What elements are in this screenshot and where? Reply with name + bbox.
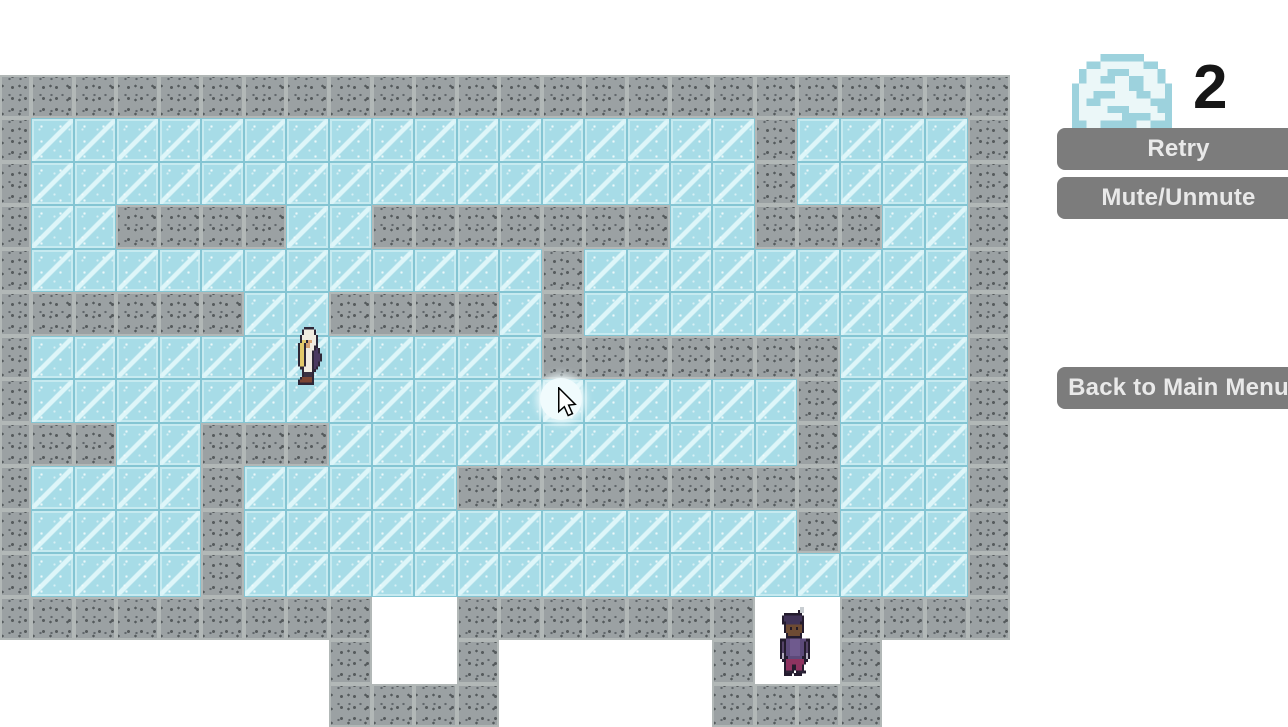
retry-button[interactable]: Retry: [1057, 128, 1288, 170]
ice-tile: [925, 553, 968, 596]
wall-tile: [840, 640, 883, 683]
wall-tile: [755, 684, 798, 727]
wall-tile: [372, 684, 415, 727]
ice-tile: [244, 466, 287, 509]
ice-tile: [797, 162, 840, 205]
ice-tile: [31, 379, 74, 422]
ice-tile: [670, 249, 713, 292]
ice-tile: [329, 205, 372, 248]
wall-tile: [0, 336, 31, 379]
wall-tile: [31, 423, 74, 466]
ice-tile: [372, 249, 415, 292]
ice-tile: [627, 553, 670, 596]
ice-tile: [627, 292, 670, 335]
wall-tile: [116, 75, 159, 118]
wall-tile: [0, 553, 31, 596]
wall-tile: [627, 75, 670, 118]
ice-tile: [882, 118, 925, 161]
ice-tile: [414, 336, 457, 379]
ice-tile: [584, 553, 627, 596]
ice-tile: [840, 249, 883, 292]
ice-tile: [457, 423, 500, 466]
ice-tile: [840, 162, 883, 205]
wall-tile: [0, 510, 31, 553]
ice-tile: [286, 379, 329, 422]
ice-tile: [31, 466, 74, 509]
ice-tile: [840, 292, 883, 335]
wall-tile: [925, 597, 968, 640]
ice-tile: [372, 466, 415, 509]
ice-tile: [329, 118, 372, 161]
wall-tile: [542, 75, 585, 118]
wall-tile: [329, 640, 372, 683]
ice-tile: [414, 162, 457, 205]
ice-tile: [542, 553, 585, 596]
ice-tile: [31, 510, 74, 553]
wall-tile: [627, 597, 670, 640]
ice-tile: [627, 510, 670, 553]
ice-tile: [882, 510, 925, 553]
ice-tile: [840, 466, 883, 509]
wall-tile: [968, 205, 1011, 248]
ice-tile: [882, 423, 925, 466]
wall-tile: [74, 292, 117, 335]
ice-tile: [116, 553, 159, 596]
ice-tile: [159, 336, 202, 379]
npc-character: [778, 607, 812, 676]
wall-tile: [457, 597, 500, 640]
ice-tile: [584, 510, 627, 553]
mute-unmute-button[interactable]: Mute/Unmute: [1057, 177, 1288, 219]
wall-tile: [797, 336, 840, 379]
ice-tile: [31, 553, 74, 596]
wall-tile: [0, 379, 31, 422]
wall-tile: [74, 423, 117, 466]
wall-tile: [797, 684, 840, 727]
ice-tile: [670, 510, 713, 553]
ice-tile: [244, 510, 287, 553]
player-character[interactable]: [294, 327, 324, 385]
ice-tile: [627, 423, 670, 466]
ice-tile: [755, 249, 798, 292]
ice-tile: [712, 162, 755, 205]
wall-tile: [74, 597, 117, 640]
wall-tile: [0, 249, 31, 292]
ice-tile: [670, 118, 713, 161]
ice-tile: [457, 249, 500, 292]
ice-tile: [584, 423, 627, 466]
ice-tile: [797, 553, 840, 596]
ice-tile: [627, 249, 670, 292]
ice-tile: [712, 118, 755, 161]
ice-tile: [159, 466, 202, 509]
wall-tile: [627, 205, 670, 248]
wall-tile: [670, 336, 713, 379]
ice-tile: [670, 205, 713, 248]
ice-tile: [755, 379, 798, 422]
ice-tile: [755, 292, 798, 335]
wall-tile: [882, 597, 925, 640]
ice-tile: [457, 118, 500, 161]
ice-tile: [925, 336, 968, 379]
wall-tile: [712, 466, 755, 509]
wall-tile: [159, 292, 202, 335]
wall-tile: [414, 75, 457, 118]
ice-tile: [712, 553, 755, 596]
ice-tile: [116, 379, 159, 422]
ice-tile: [116, 118, 159, 161]
wall-tile: [286, 423, 329, 466]
wall-tile: [797, 205, 840, 248]
wall-tile: [968, 75, 1011, 118]
ice-tile: [925, 249, 968, 292]
ice-tile: [755, 423, 798, 466]
wall-tile: [201, 597, 244, 640]
ice-tile: [840, 553, 883, 596]
wall-tile: [968, 292, 1011, 335]
level-number: 2: [1193, 52, 1253, 123]
wall-tile: [542, 249, 585, 292]
ice-tile: [286, 205, 329, 248]
wall-tile: [286, 597, 329, 640]
wall-tile: [201, 205, 244, 248]
ice-tile: [74, 118, 117, 161]
ice-tile: [116, 466, 159, 509]
wall-tile: [31, 597, 74, 640]
ice-tile: [925, 162, 968, 205]
wall-tile: [968, 553, 1011, 596]
wall-tile: [499, 205, 542, 248]
ice-tile: [201, 118, 244, 161]
ice-tile: [499, 292, 542, 335]
ice-tile: [457, 162, 500, 205]
ice-tile: [159, 249, 202, 292]
ice-tile: [372, 379, 415, 422]
ice-tile: [116, 336, 159, 379]
ice-tile: [31, 336, 74, 379]
wall-tile: [755, 466, 798, 509]
wall-tile: [882, 75, 925, 118]
ice-tile: [414, 379, 457, 422]
ice-tile: [414, 553, 457, 596]
ice-tile: [372, 553, 415, 596]
wall-tile: [542, 597, 585, 640]
ice-tile: [712, 292, 755, 335]
ice-tile: [329, 423, 372, 466]
ice-tile: [116, 510, 159, 553]
wall-tile: [797, 466, 840, 509]
wall-tile: [584, 597, 627, 640]
wall-tile: [968, 510, 1011, 553]
ice-tile: [925, 205, 968, 248]
ice-tile: [74, 553, 117, 596]
ice-tile: [74, 466, 117, 509]
ice-tile: [159, 553, 202, 596]
wall-tile: [74, 75, 117, 118]
ice-tile: [542, 510, 585, 553]
wall-tile: [840, 597, 883, 640]
ice-tile: [797, 118, 840, 161]
ice-tile: [244, 379, 287, 422]
wall-tile: [712, 684, 755, 727]
ice-tile: [116, 423, 159, 466]
wall-tile: [712, 597, 755, 640]
ice-tile: [31, 205, 74, 248]
wall-tile: [329, 597, 372, 640]
ice-tile: [116, 162, 159, 205]
wall-tile: [457, 75, 500, 118]
wall-tile: [925, 75, 968, 118]
ice-tile: [286, 553, 329, 596]
ice-tile: [74, 249, 117, 292]
ice-tile: [925, 510, 968, 553]
wall-tile: [968, 466, 1011, 509]
cursor-pointer-icon: [556, 387, 578, 417]
ice-tile: [670, 423, 713, 466]
wall-tile: [201, 466, 244, 509]
wall-tile: [0, 75, 31, 118]
ice-tile: [670, 162, 713, 205]
ice-tile: [712, 379, 755, 422]
wall-tile: [116, 597, 159, 640]
wall-tile: [968, 379, 1011, 422]
wall-tile: [244, 597, 287, 640]
ice-tile: [286, 118, 329, 161]
ice-tile: [159, 510, 202, 553]
wall-tile: [542, 336, 585, 379]
ice-tile: [755, 553, 798, 596]
ice-tile: [499, 336, 542, 379]
wall-tile: [797, 510, 840, 553]
ice-tile: [329, 379, 372, 422]
ice-tile: [244, 249, 287, 292]
ice-tile: [925, 466, 968, 509]
ice-tile: [159, 118, 202, 161]
ice-tile: [244, 118, 287, 161]
ice-tile: [414, 510, 457, 553]
ice-tile: [882, 205, 925, 248]
ice-tile: [542, 118, 585, 161]
maze: [0, 0, 1010, 727]
ice-tile: [31, 118, 74, 161]
ice-tile: [457, 553, 500, 596]
wall-tile: [31, 75, 74, 118]
wall-tile: [329, 75, 372, 118]
ice-tile: [925, 423, 968, 466]
ice-tile: [755, 510, 798, 553]
ice-tile: [414, 118, 457, 161]
ice-tile: [372, 162, 415, 205]
ice-tile: [670, 553, 713, 596]
ice-tile: [499, 379, 542, 422]
wall-tile: [201, 423, 244, 466]
ice-tile: [286, 466, 329, 509]
ice-tile: [201, 336, 244, 379]
ice-tile: [244, 336, 287, 379]
wall-tile: [414, 684, 457, 727]
ice-tile: [414, 423, 457, 466]
wall-tile: [627, 466, 670, 509]
wall-tile: [244, 205, 287, 248]
wall-tile: [968, 423, 1011, 466]
wall-tile: [116, 205, 159, 248]
wall-tile: [0, 597, 31, 640]
ice-tile: [882, 336, 925, 379]
ice-tile: [329, 510, 372, 553]
wall-tile: [372, 205, 415, 248]
wall-tile: [0, 162, 31, 205]
wall-tile: [797, 75, 840, 118]
wall-tile: [542, 292, 585, 335]
ice-tile: [584, 118, 627, 161]
wall-tile: [372, 75, 415, 118]
ice-tile: [201, 162, 244, 205]
ice-tile: [329, 336, 372, 379]
ice-tile: [712, 205, 755, 248]
ice-tile: [925, 292, 968, 335]
ice-tile: [840, 118, 883, 161]
ice-tile: [74, 162, 117, 205]
wall-tile: [329, 292, 372, 335]
ice-tile: [712, 249, 755, 292]
wall-tile: [670, 75, 713, 118]
wall-tile: [797, 423, 840, 466]
ice-tile: [542, 162, 585, 205]
wall-tile: [0, 423, 31, 466]
ice-tile: [116, 249, 159, 292]
ice-tile: [74, 205, 117, 248]
wall-tile: [755, 205, 798, 248]
ice-tile: [201, 249, 244, 292]
ice-tile: [627, 162, 670, 205]
ice-tile: [627, 118, 670, 161]
wall-tile: [797, 379, 840, 422]
wall-tile: [840, 205, 883, 248]
ice-tile: [627, 379, 670, 422]
wall-tile: [968, 336, 1011, 379]
wall-tile: [31, 292, 74, 335]
ice-tile: [499, 118, 542, 161]
ice-tile: [159, 162, 202, 205]
wall-tile: [159, 597, 202, 640]
ice-tile: [74, 379, 117, 422]
ice-tile: [457, 510, 500, 553]
wall-tile: [457, 292, 500, 335]
wall-tile: [244, 75, 287, 118]
ice-tile: [840, 379, 883, 422]
ice-tile: [372, 336, 415, 379]
ice-tile: [499, 162, 542, 205]
wall-tile: [499, 597, 542, 640]
ice-tile: [372, 510, 415, 553]
ice-tile: [201, 379, 244, 422]
wall-tile: [159, 205, 202, 248]
ice-tile: [840, 510, 883, 553]
ice-tile: [457, 336, 500, 379]
ice-tile: [329, 162, 372, 205]
ice-tile: [584, 249, 627, 292]
wall-tile: [840, 684, 883, 727]
game-viewport: 2 Retry Mute/Unmute Back to Main Menu: [0, 0, 1288, 727]
wall-tile: [968, 162, 1011, 205]
wall-tile: [670, 466, 713, 509]
back-to-main-menu-button[interactable]: Back to Main Menu: [1057, 367, 1288, 409]
ice-tile: [925, 379, 968, 422]
ice-tile: [882, 249, 925, 292]
wall-tile: [627, 336, 670, 379]
ice-tile: [159, 379, 202, 422]
wall-tile: [414, 205, 457, 248]
wall-tile: [244, 423, 287, 466]
wall-tile: [201, 510, 244, 553]
wall-tile: [755, 162, 798, 205]
wall-tile: [968, 118, 1011, 161]
wall-tile: [968, 249, 1011, 292]
ice-tile: [670, 379, 713, 422]
ice-tile: [414, 249, 457, 292]
ice-tile: [542, 423, 585, 466]
wall-tile: [201, 75, 244, 118]
ice-tile: [329, 466, 372, 509]
wall-tile: [0, 205, 31, 248]
wall-tile: [584, 75, 627, 118]
wall-tile: [755, 75, 798, 118]
wall-tile: [0, 292, 31, 335]
ice-tile: [329, 553, 372, 596]
ice-tile: [414, 466, 457, 509]
wall-tile: [670, 597, 713, 640]
ice-tile: [882, 162, 925, 205]
ice-tile: [499, 249, 542, 292]
wall-tile: [840, 75, 883, 118]
ice-tile: [74, 336, 117, 379]
ice-tile: [329, 249, 372, 292]
wall-tile: [457, 466, 500, 509]
wall-tile: [159, 75, 202, 118]
wall-tile: [116, 292, 159, 335]
wall-tile: [499, 75, 542, 118]
ice-planet-icon: [1072, 54, 1172, 128]
wall-tile: [457, 205, 500, 248]
ice-tile: [286, 249, 329, 292]
ice-tile: [499, 423, 542, 466]
wall-tile: [584, 336, 627, 379]
wall-tile: [542, 205, 585, 248]
wall-tile: [201, 292, 244, 335]
wall-tile: [584, 205, 627, 248]
wall-tile: [542, 466, 585, 509]
ice-tile: [584, 292, 627, 335]
ice-tile: [882, 553, 925, 596]
wall-tile: [712, 640, 755, 683]
ice-tile: [882, 379, 925, 422]
ice-tile: [244, 162, 287, 205]
wall-tile: [329, 684, 372, 727]
wall-tile: [584, 466, 627, 509]
ice-tile: [840, 423, 883, 466]
wall-tile: [457, 684, 500, 727]
wall-tile: [755, 336, 798, 379]
ice-tile: [499, 510, 542, 553]
wall-tile: [201, 553, 244, 596]
ice-tile: [159, 423, 202, 466]
wall-tile: [0, 118, 31, 161]
ice-tile: [584, 379, 627, 422]
ice-tile: [372, 118, 415, 161]
wall-tile: [755, 118, 798, 161]
wall-tile: [286, 75, 329, 118]
ice-tile: [712, 423, 755, 466]
